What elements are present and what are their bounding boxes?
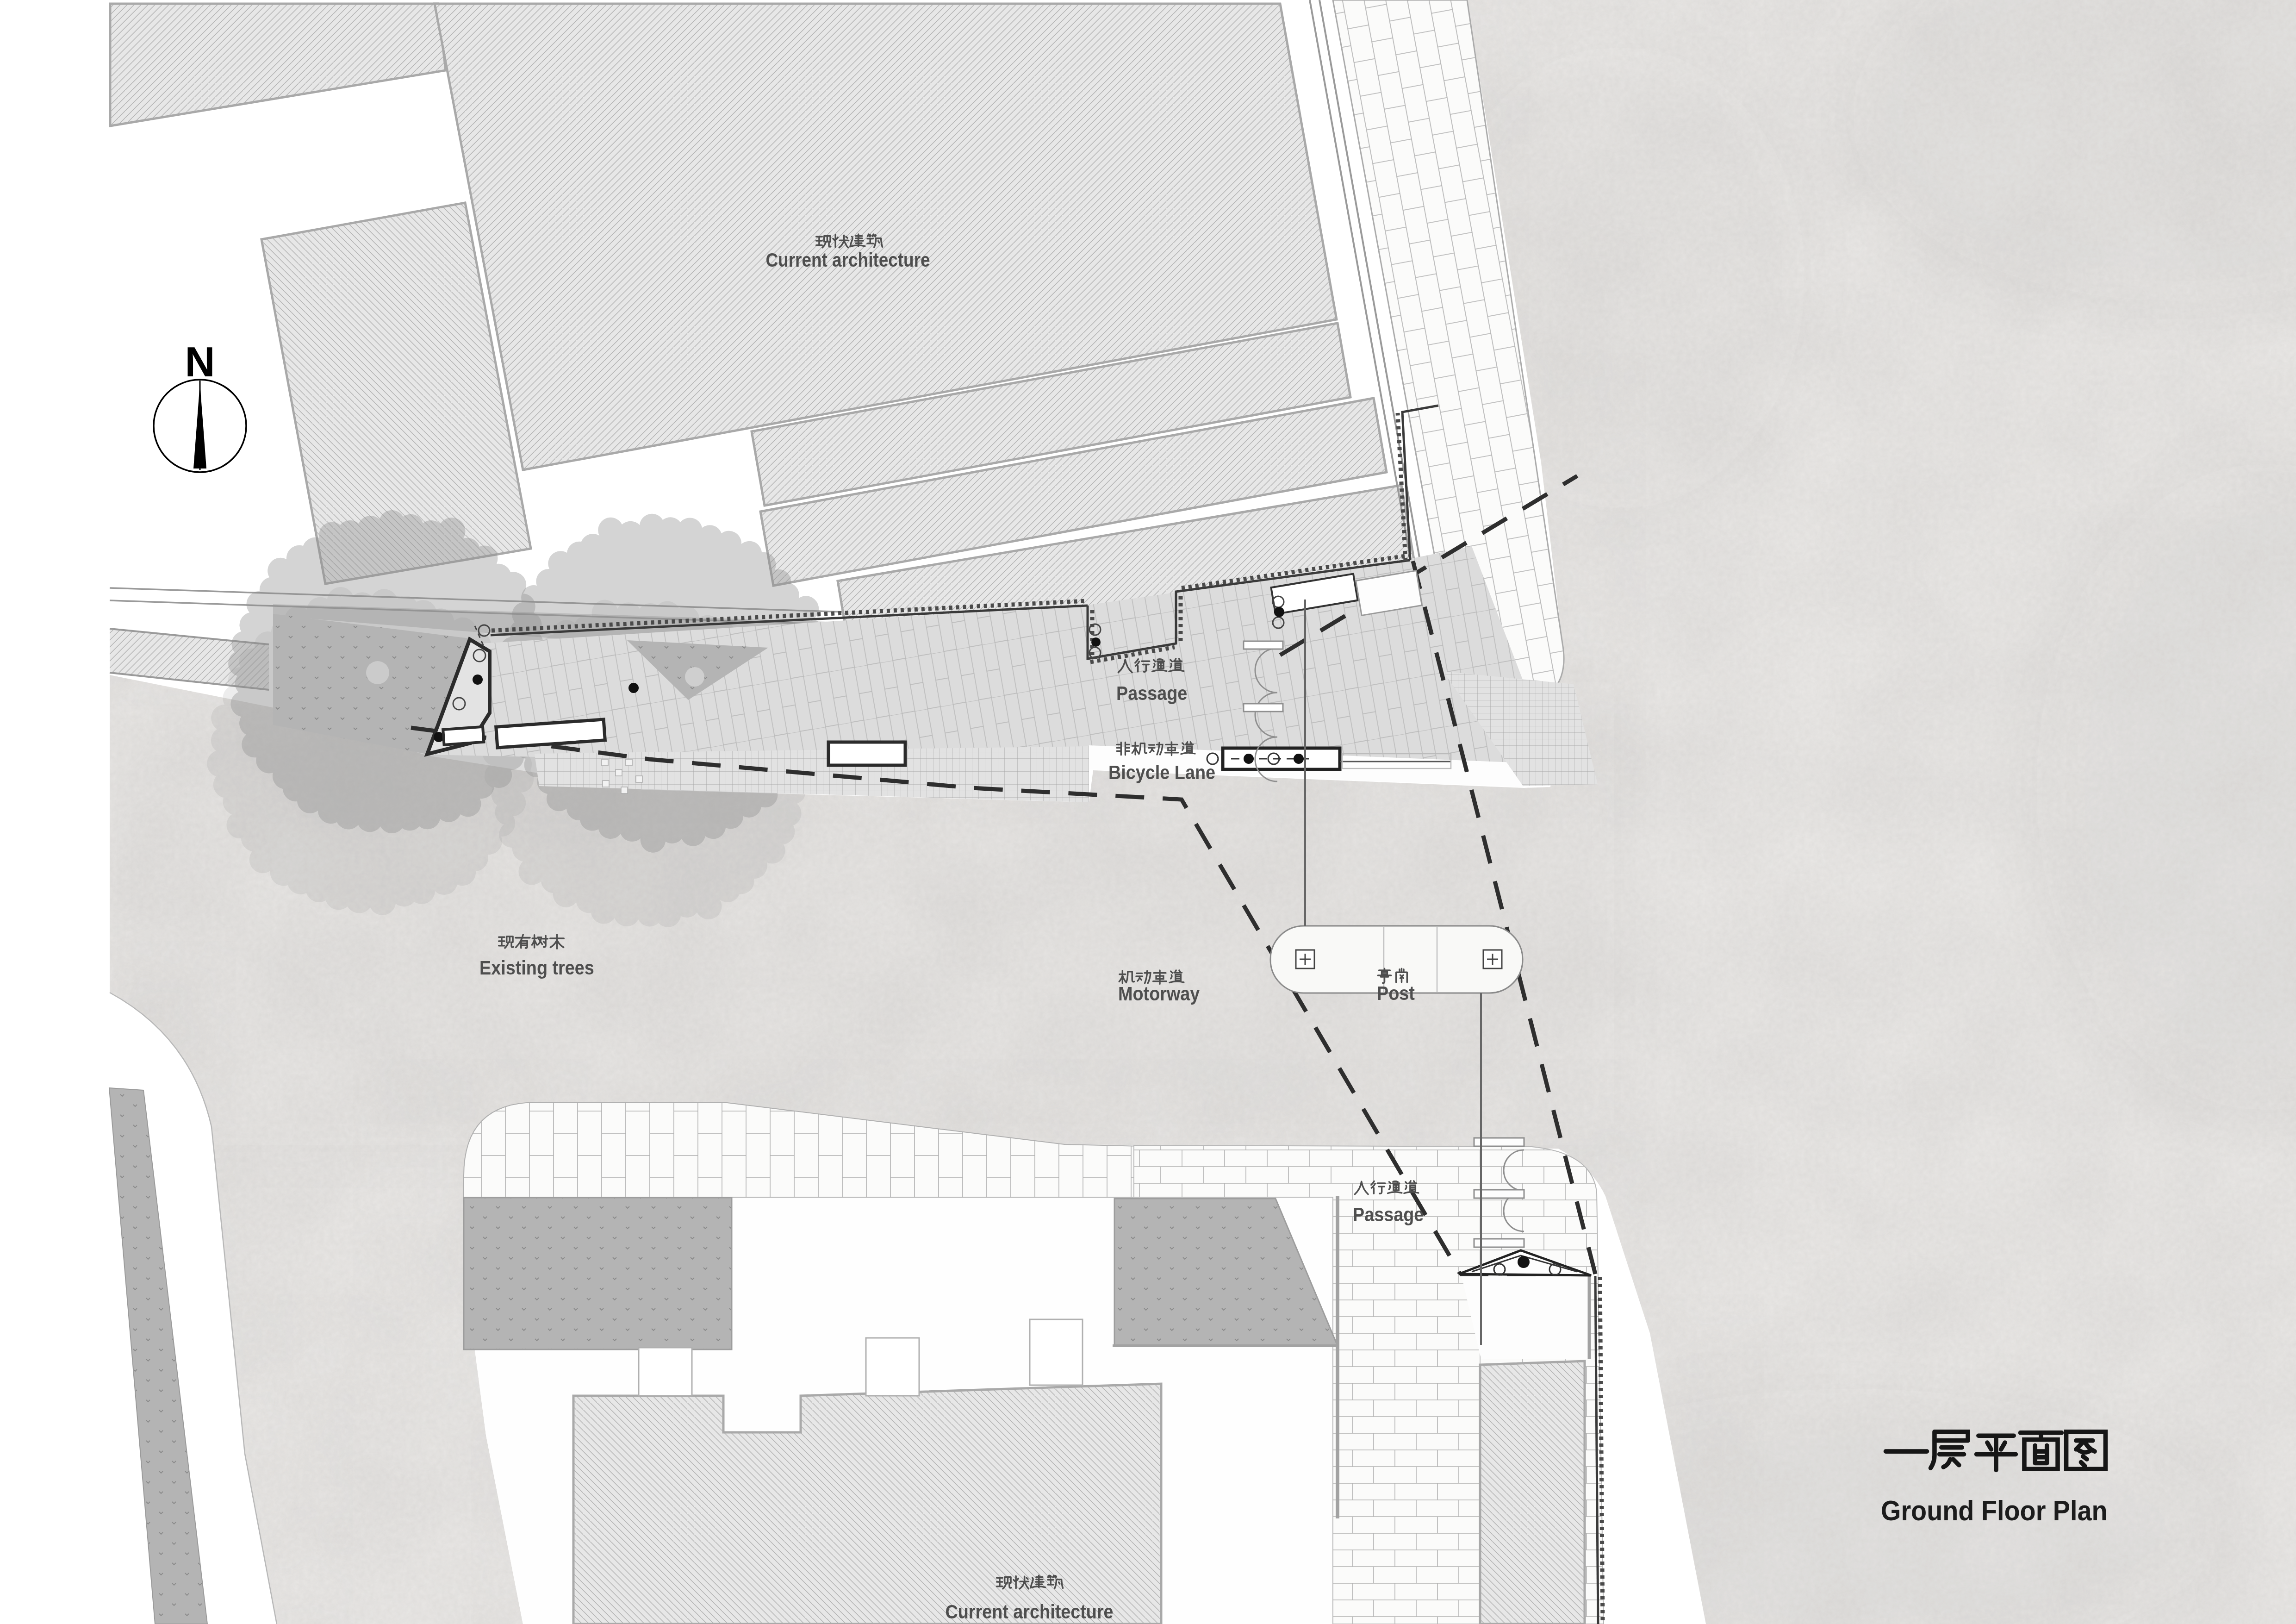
svg-text:Passage: Passage bbox=[1353, 1204, 1424, 1225]
svg-text:Passage: Passage bbox=[1116, 682, 1187, 704]
svg-text:N: N bbox=[185, 339, 215, 385]
svg-text:Motorway: Motorway bbox=[1118, 983, 1200, 1004]
svg-text:Post: Post bbox=[1377, 982, 1415, 1004]
svg-text:Current architecture: Current architecture bbox=[945, 1601, 1113, 1622]
svg-text:Ground Floor Plan: Ground Floor Plan bbox=[1881, 1494, 2108, 1526]
svg-text:Existing trees: Existing trees bbox=[479, 957, 594, 978]
svg-text:Current architecture: Current architecture bbox=[765, 249, 930, 271]
svg-text:Bicycle Lane: Bicycle Lane bbox=[1108, 762, 1215, 783]
